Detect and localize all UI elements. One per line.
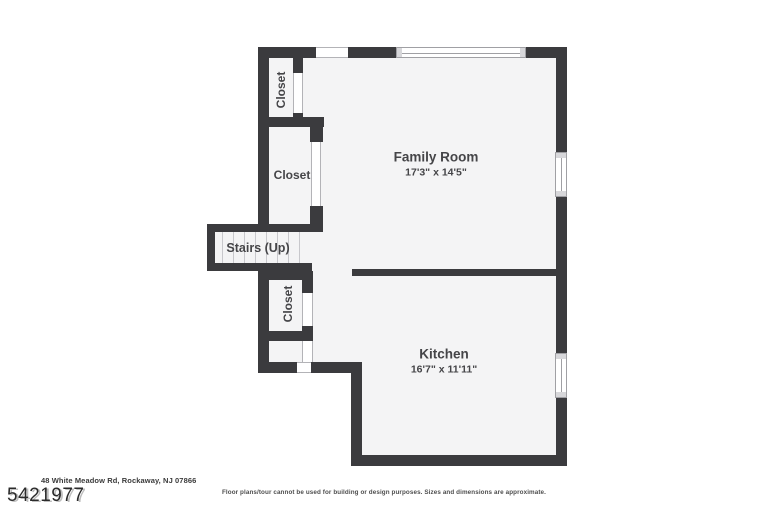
disclaimer-text: Floor plans/tour cannot be used for buil… [0, 489, 768, 496]
wall-stairs-bottom [207, 263, 312, 271]
kitchen-name: Kitchen [411, 347, 477, 364]
window-glass-line [561, 354, 562, 397]
family-room-label: Family Room 17'3" x 14'5" [394, 150, 479, 181]
wall-kitchen-left [351, 362, 362, 466]
window-glass-line [397, 53, 525, 54]
closet-top-label: Closet [274, 72, 288, 109]
wall-closet2-top-cap [310, 117, 323, 142]
wall-stairs-left [207, 224, 215, 271]
closet-middle-label: Closet [274, 168, 311, 182]
door-opening-top-wall [316, 47, 348, 58]
wall-stairs-top [207, 224, 323, 232]
window-sash [556, 191, 566, 196]
wall-left-lower [258, 263, 269, 373]
property-address: 48 White Meadow Rd, Rockaway, NJ 07866 [41, 476, 196, 485]
wall-step-bottom-right [311, 362, 362, 373]
window-top [396, 47, 526, 58]
window-sash [520, 48, 525, 57]
wall-room-divider [352, 269, 556, 276]
stairs-label: Stairs (Up) [226, 241, 289, 255]
closet-bottom-label: Closet [281, 286, 295, 323]
wall-closet1-right-stub [293, 58, 303, 73]
stair-tread-line [222, 232, 223, 263]
family-room-name: Family Room [394, 150, 479, 167]
wall-closet3-right-stub-top [302, 271, 313, 293]
window-sash [556, 153, 566, 158]
wall-closet2-bottom-cap [310, 206, 323, 232]
wall-closet3-bottom [269, 331, 313, 341]
wall-left-upper [258, 47, 269, 232]
door-opening-hallway [302, 341, 313, 362]
window-sash [556, 392, 566, 397]
window-sash [556, 354, 566, 359]
floorplan-page: Family Room 17'3" x 14'5" Kitchen 16'7" … [0, 0, 768, 512]
window-sash [397, 48, 402, 57]
family-room-dimensions: 17'3" x 14'5" [394, 167, 479, 181]
door-opening-closet3 [302, 293, 313, 326]
kitchen-dimensions: 16'7" x 11'11" [411, 364, 477, 378]
door-opening-closet2 [311, 142, 321, 206]
door-opening-bottom-wall [297, 362, 311, 373]
kitchen-label: Kitchen 16'7" x 11'11" [411, 347, 477, 378]
window-glass-line [561, 153, 562, 196]
stair-tread-line [299, 232, 300, 263]
wall-bottom [351, 455, 567, 466]
wall-right [556, 47, 567, 466]
window-kitchen [555, 353, 567, 398]
door-opening-closet1 [293, 73, 303, 113]
window-family-room [555, 152, 567, 197]
